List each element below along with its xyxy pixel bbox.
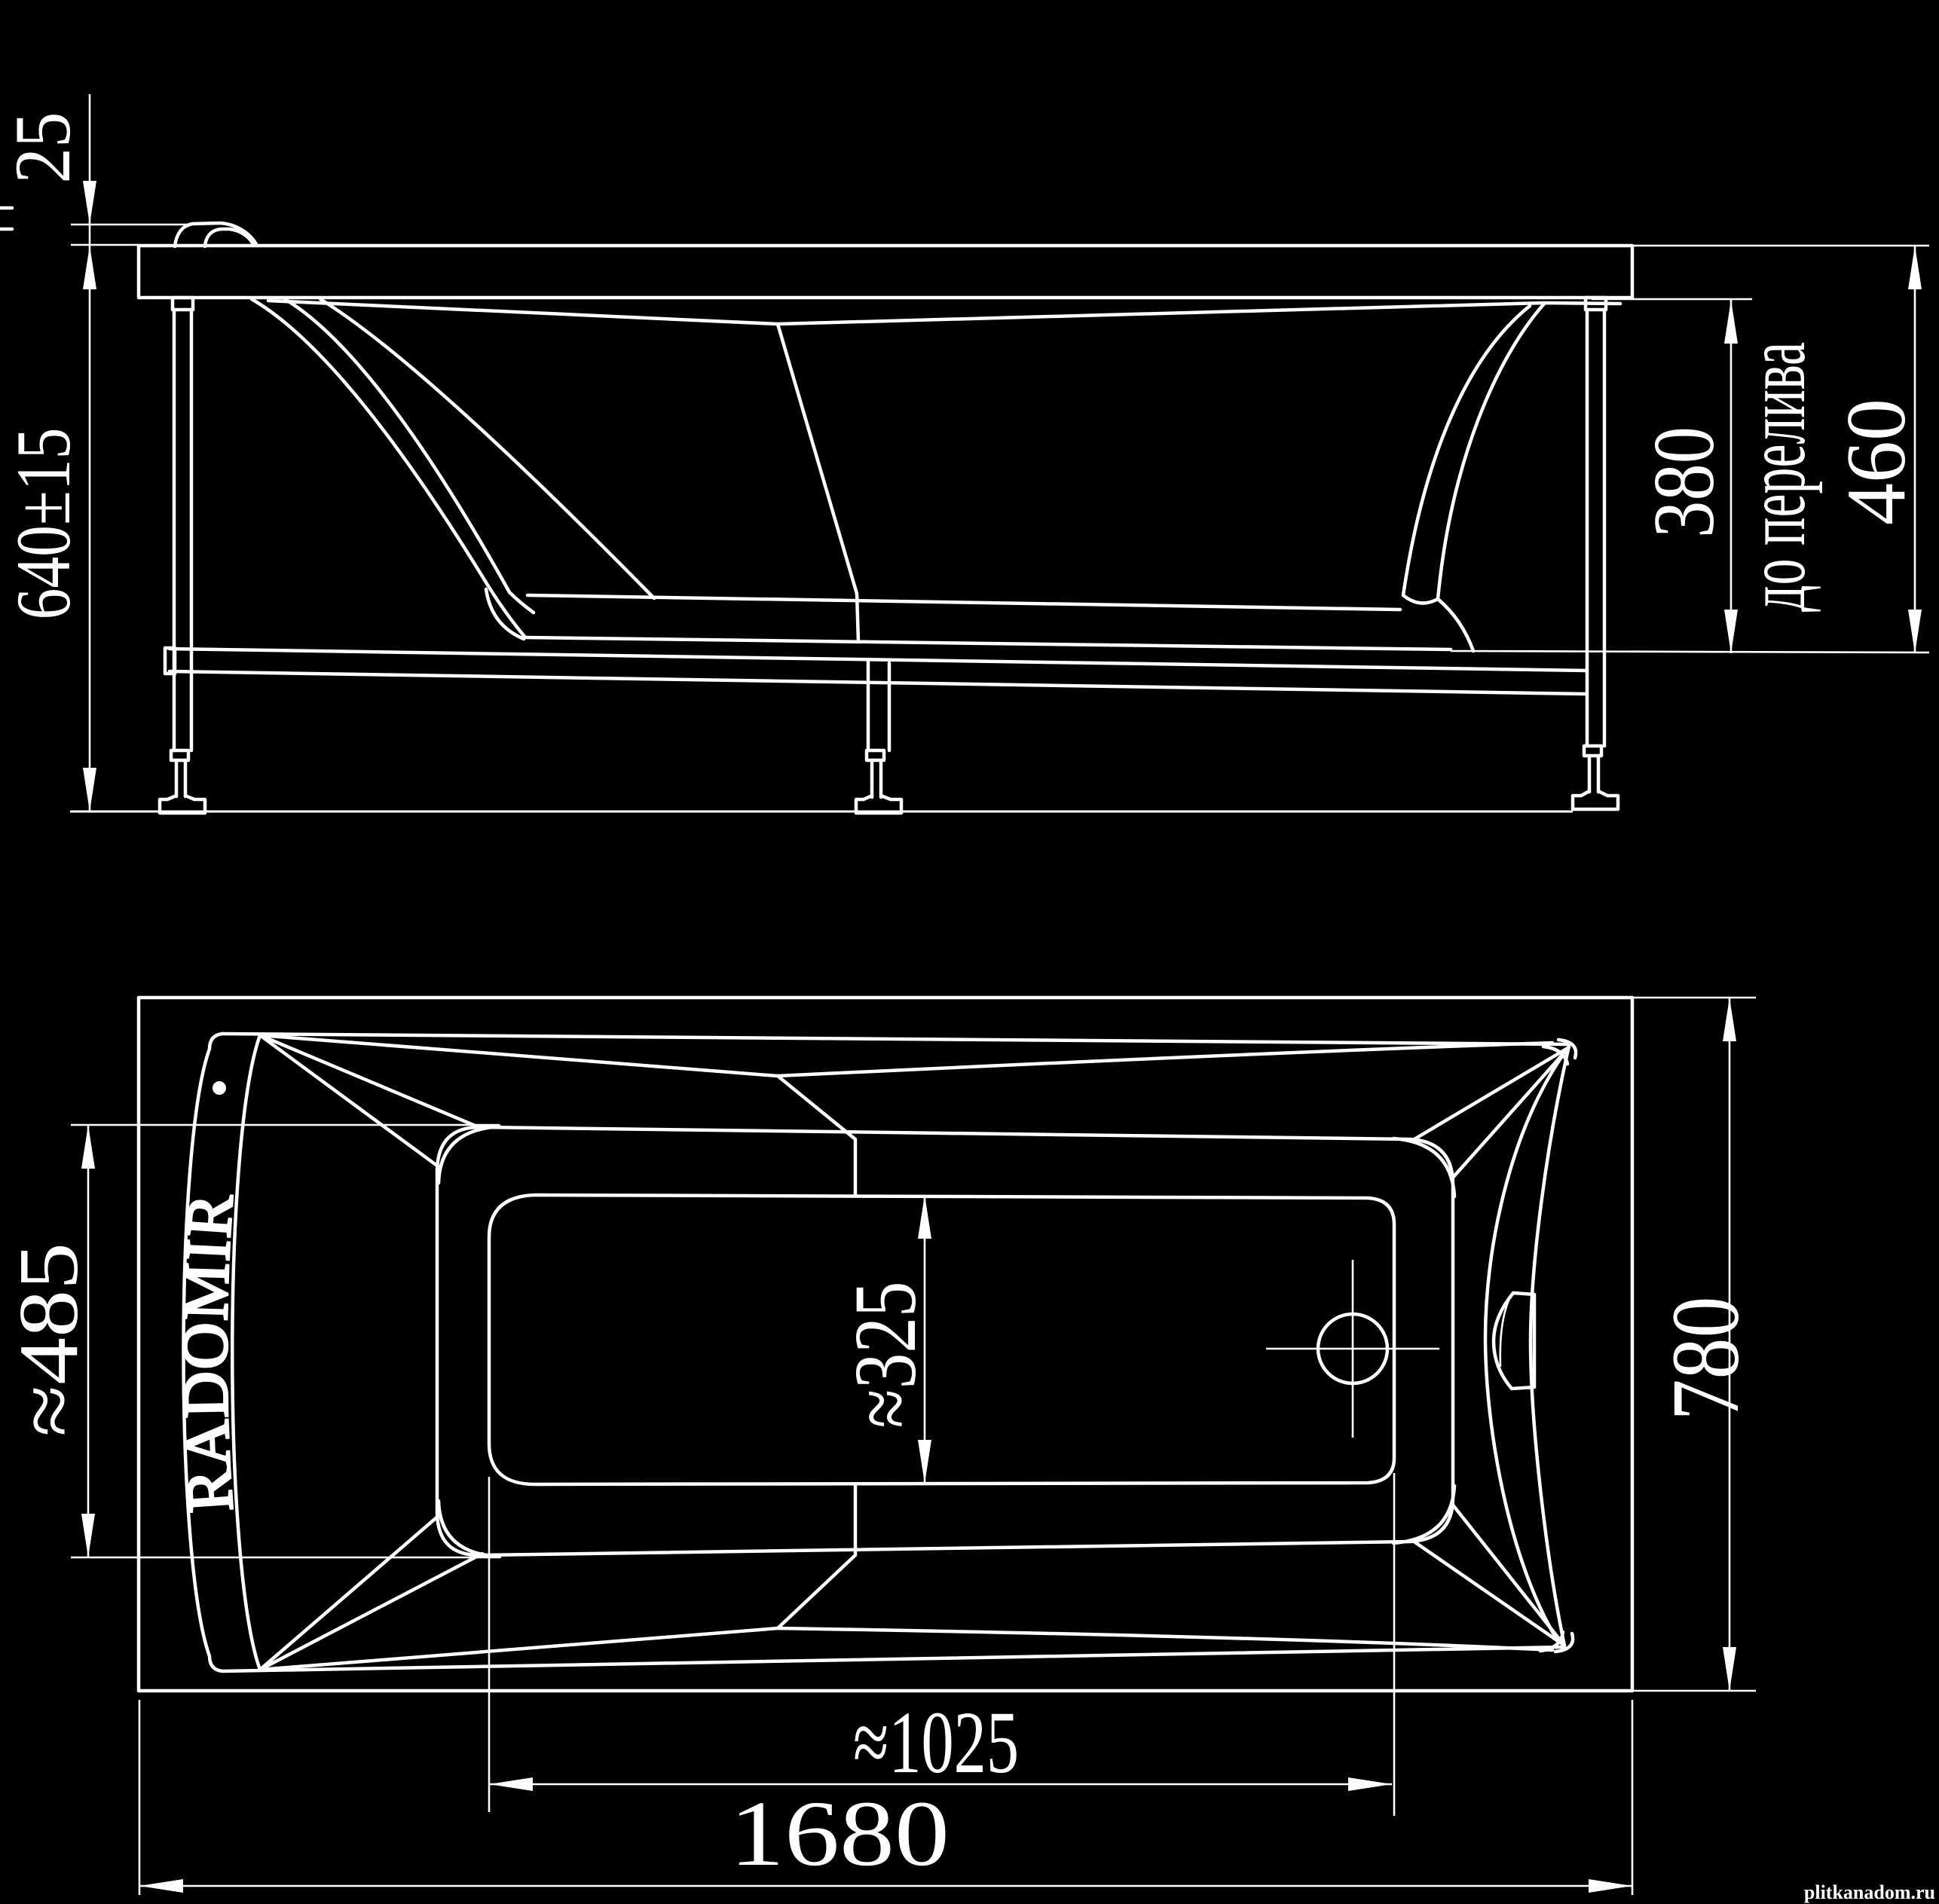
svg-text:≈485: ≈485 xyxy=(2,1242,96,1437)
svg-text:plitkanadom.ru: plitkanadom.ru xyxy=(1804,1881,1935,1903)
svg-text:RADOMIR: RADOMIR xyxy=(169,1190,247,1515)
svg-text:≈325: ≈325 xyxy=(836,1282,934,1429)
svg-text:780: 780 xyxy=(1652,1297,1759,1421)
svg-text:460: 460 xyxy=(1830,399,1923,525)
svg-text:380: 380 xyxy=(1636,426,1733,538)
svg-text:640±15: 640±15 xyxy=(1,428,87,620)
svg-text:25: 25 xyxy=(0,112,87,184)
svg-text:1680: 1680 xyxy=(729,1782,950,1885)
svg-text:до перелива: до перелива xyxy=(1730,342,1823,612)
svg-text:≈1025: ≈1025 xyxy=(853,1693,1019,1792)
